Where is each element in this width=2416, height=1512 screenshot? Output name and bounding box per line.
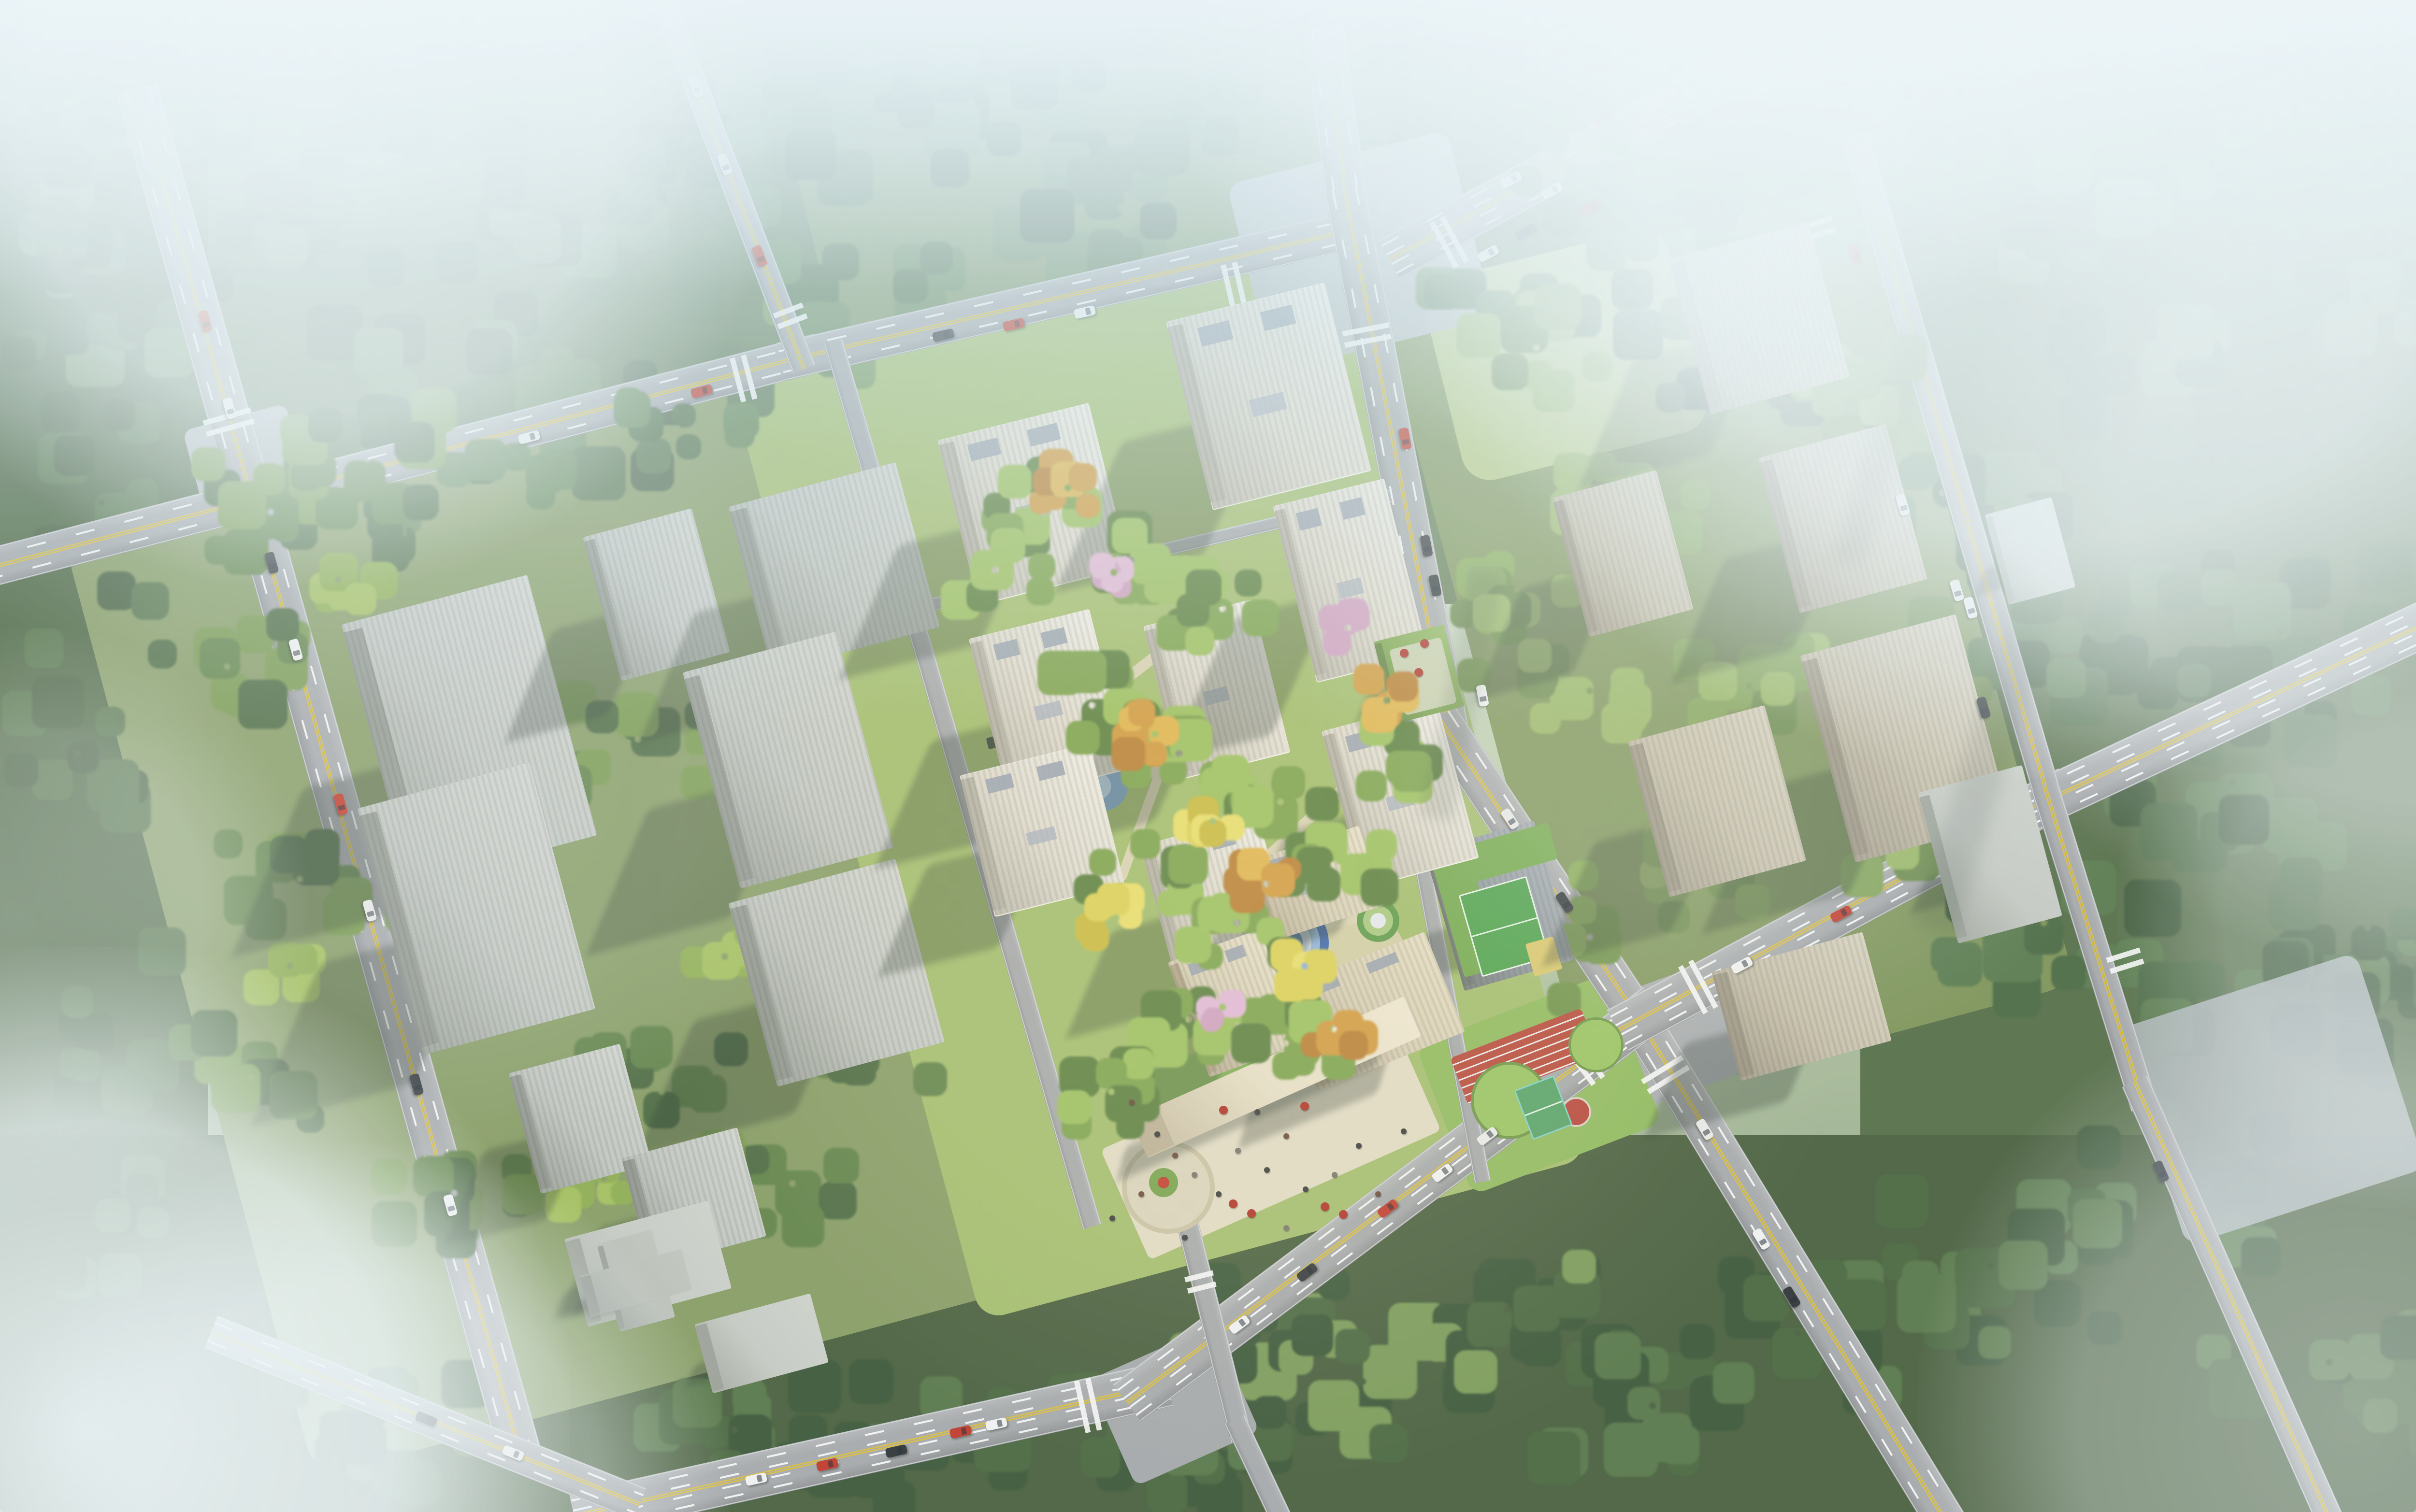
atmosphere-veil — [0, 0, 2416, 1512]
aerial-render-canvas — [0, 0, 2416, 1512]
